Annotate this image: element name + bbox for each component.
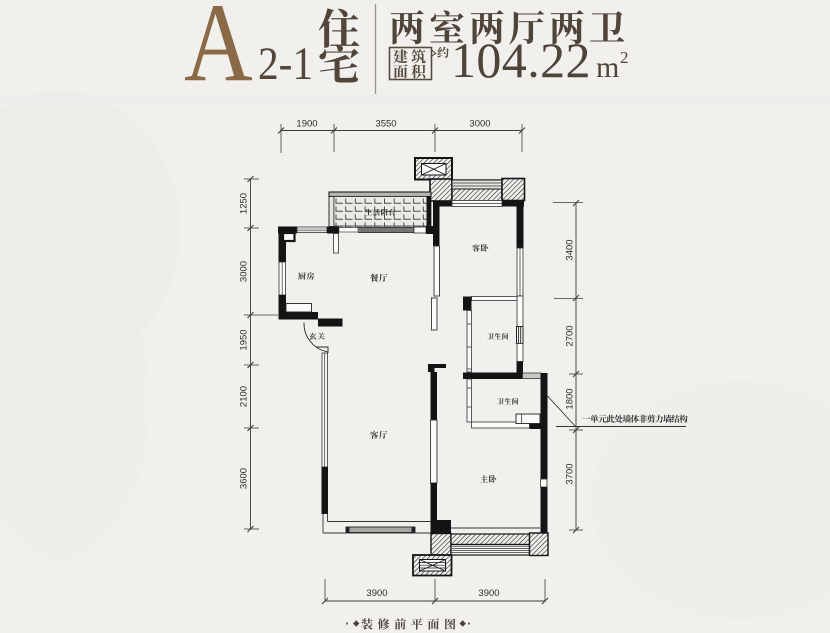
svg-text:2700: 2700 <box>565 325 576 346</box>
svg-text:A: A <box>184 0 253 105</box>
svg-text:3400: 3400 <box>565 239 576 260</box>
svg-text:3900: 3900 <box>366 588 387 599</box>
svg-text:2100: 2100 <box>239 386 250 407</box>
svg-text:1250: 1250 <box>239 193 250 214</box>
svg-text:3700: 3700 <box>565 463 576 484</box>
svg-text:m: m <box>596 51 619 84</box>
svg-text:3550: 3550 <box>375 119 396 130</box>
svg-text:1900: 1900 <box>296 119 317 130</box>
svg-text:1950: 1950 <box>239 329 250 350</box>
svg-text:3000: 3000 <box>469 119 490 130</box>
svg-text:104.22: 104.22 <box>451 32 591 88</box>
svg-text:1800: 1800 <box>565 388 576 409</box>
svg-text:3600: 3600 <box>239 468 250 489</box>
svg-text:3000: 3000 <box>239 261 250 282</box>
svg-text:2: 2 <box>620 48 629 67</box>
svg-text:2-1: 2-1 <box>258 38 313 90</box>
svg-text:3900: 3900 <box>478 588 499 599</box>
